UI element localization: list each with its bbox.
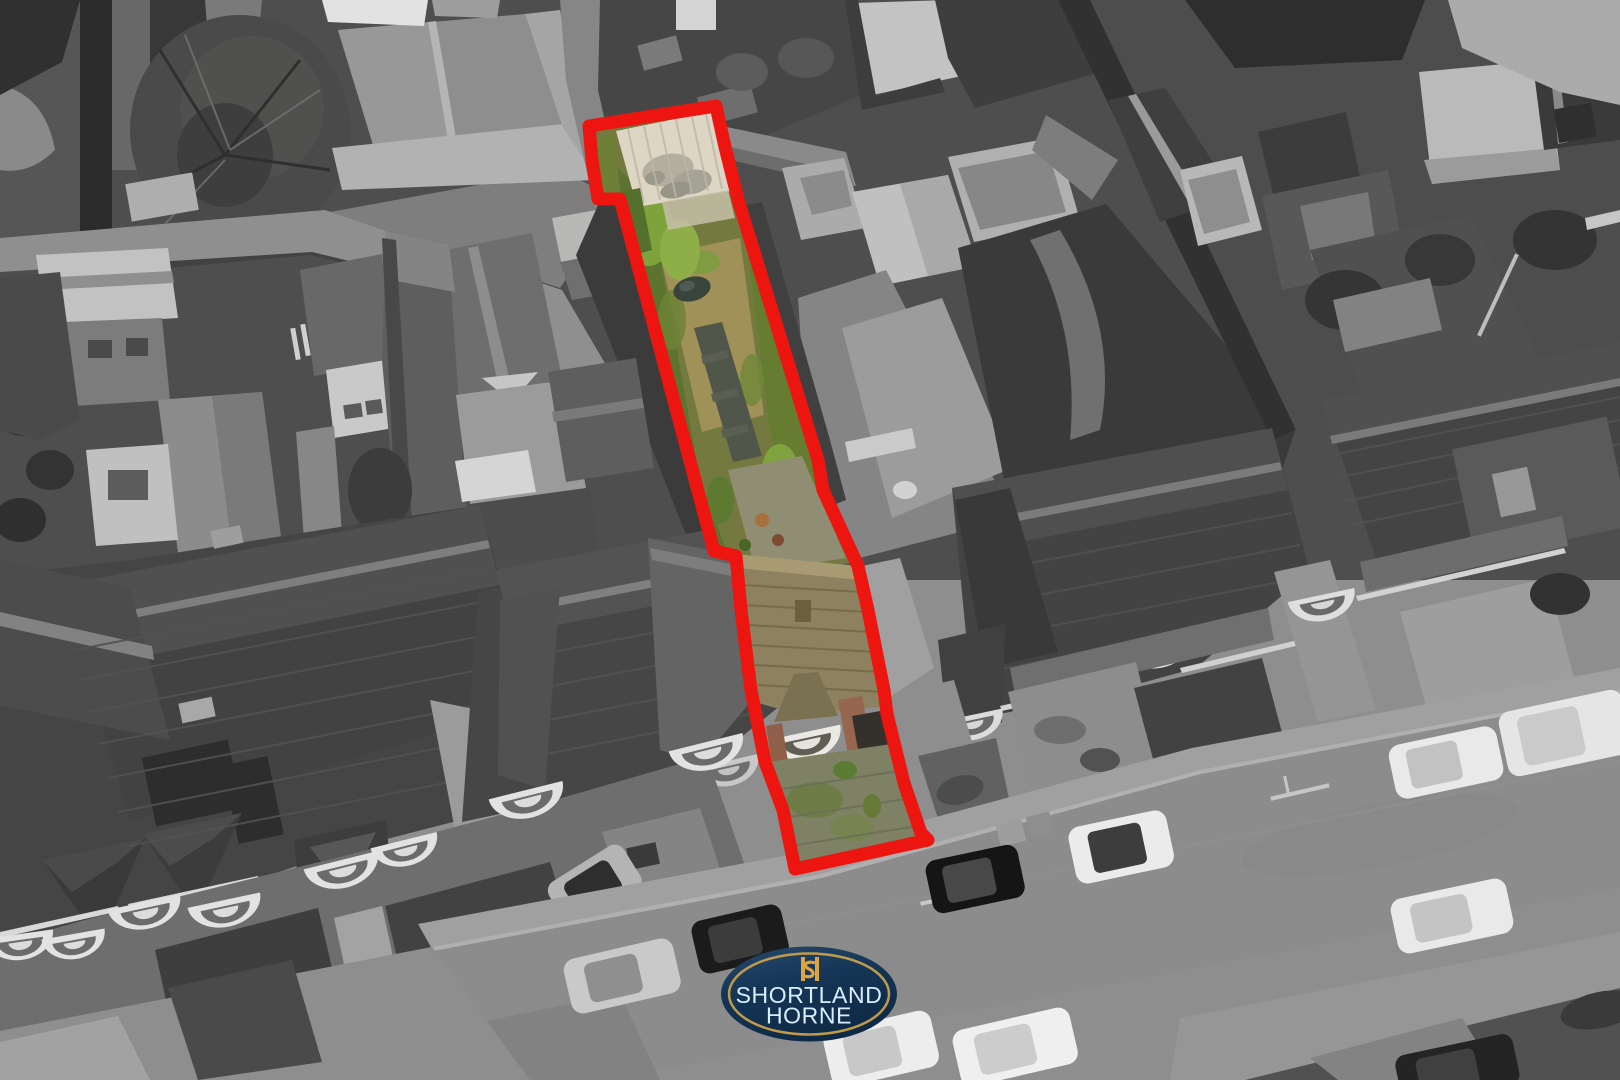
svg-text:HORNE: HORNE [766,1003,852,1029]
